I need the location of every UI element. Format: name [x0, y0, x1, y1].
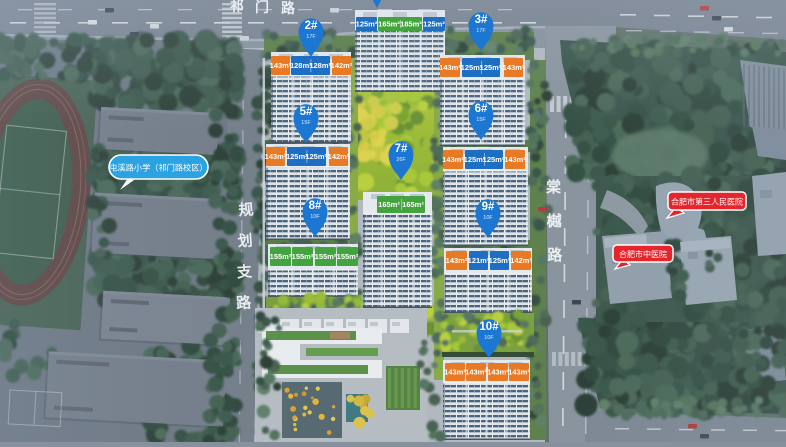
svg-text:10#: 10#	[479, 321, 499, 333]
svg-text:2#: 2#	[305, 20, 318, 32]
svg-text:26F: 26F	[396, 157, 406, 163]
svg-text:合肥市第三人民医院: 合肥市第三人民医院	[671, 197, 743, 207]
svg-text:10F: 10F	[483, 215, 493, 221]
svg-text:125m²: 125m²	[305, 152, 327, 161]
svg-text:5#: 5#	[300, 106, 313, 118]
svg-text:规: 规	[238, 201, 254, 219]
svg-text:143m²: 143m²	[508, 368, 530, 377]
svg-text:121m²: 121m²	[468, 256, 490, 265]
svg-text:路: 路	[235, 293, 252, 312]
svg-text:165m²: 165m²	[378, 20, 400, 29]
svg-text:125m²: 125m²	[356, 20, 378, 29]
svg-text:143m²: 143m²	[270, 61, 292, 70]
svg-text:125m²: 125m²	[489, 256, 511, 265]
svg-text:143m²: 143m²	[465, 368, 487, 377]
svg-text:143m²: 143m²	[442, 155, 464, 164]
svg-text:7#: 7#	[395, 143, 408, 155]
svg-text:合肥市中医院: 合肥市中医院	[619, 249, 667, 259]
svg-text:屯溪路小学（祁门路校区）: 屯溪路小学（祁门路校区）	[109, 163, 207, 173]
svg-text:门: 门	[255, 0, 269, 15]
svg-text:17F: 17F	[306, 34, 316, 40]
svg-text:143m²: 143m²	[446, 256, 468, 265]
svg-text:142m²: 142m²	[510, 256, 532, 265]
svg-text:10F: 10F	[310, 214, 320, 220]
svg-text:17F: 17F	[476, 28, 486, 34]
svg-text:165m²: 165m²	[378, 200, 400, 209]
svg-text:155m²: 155m²	[292, 252, 314, 261]
svg-text:划: 划	[237, 231, 253, 250]
svg-text:185m²: 185m²	[400, 20, 422, 29]
svg-text:15F: 15F	[301, 120, 311, 126]
svg-text:125m²: 125m²	[423, 20, 445, 29]
svg-text:125m²: 125m²	[483, 155, 505, 164]
svg-text:142m²: 142m²	[328, 152, 350, 161]
svg-text:路: 路	[281, 0, 296, 16]
svg-text:路: 路	[547, 246, 563, 264]
svg-text:128m²: 128m²	[309, 61, 331, 70]
svg-text:142m²: 142m²	[331, 61, 353, 70]
svg-text:143m²: 143m²	[439, 63, 461, 72]
svg-text:155m²: 155m²	[315, 252, 337, 261]
svg-text:3#: 3#	[475, 14, 488, 26]
svg-text:8#: 8#	[309, 200, 322, 212]
svg-text:樾: 樾	[547, 212, 563, 230]
svg-text:9#: 9#	[482, 201, 495, 213]
svg-text:143m²: 143m²	[444, 368, 466, 377]
svg-text:10F: 10F	[484, 335, 494, 341]
svg-text:棠: 棠	[545, 178, 562, 196]
svg-text:143m²: 143m²	[504, 155, 526, 164]
svg-text:155m²: 155m²	[337, 252, 359, 261]
svg-text:祁: 祁	[230, 0, 244, 14]
svg-text:143m²: 143m²	[503, 63, 525, 72]
svg-text:155m²: 155m²	[270, 252, 292, 261]
svg-text:165m²: 165m²	[402, 200, 424, 209]
svg-text:143m²: 143m²	[487, 368, 509, 377]
svg-text:143m²: 143m²	[265, 152, 287, 161]
svg-text:6#: 6#	[475, 103, 488, 115]
svg-text:支: 支	[235, 262, 253, 281]
svg-text:125m²: 125m²	[480, 63, 502, 72]
svg-text:15F: 15F	[476, 117, 486, 123]
